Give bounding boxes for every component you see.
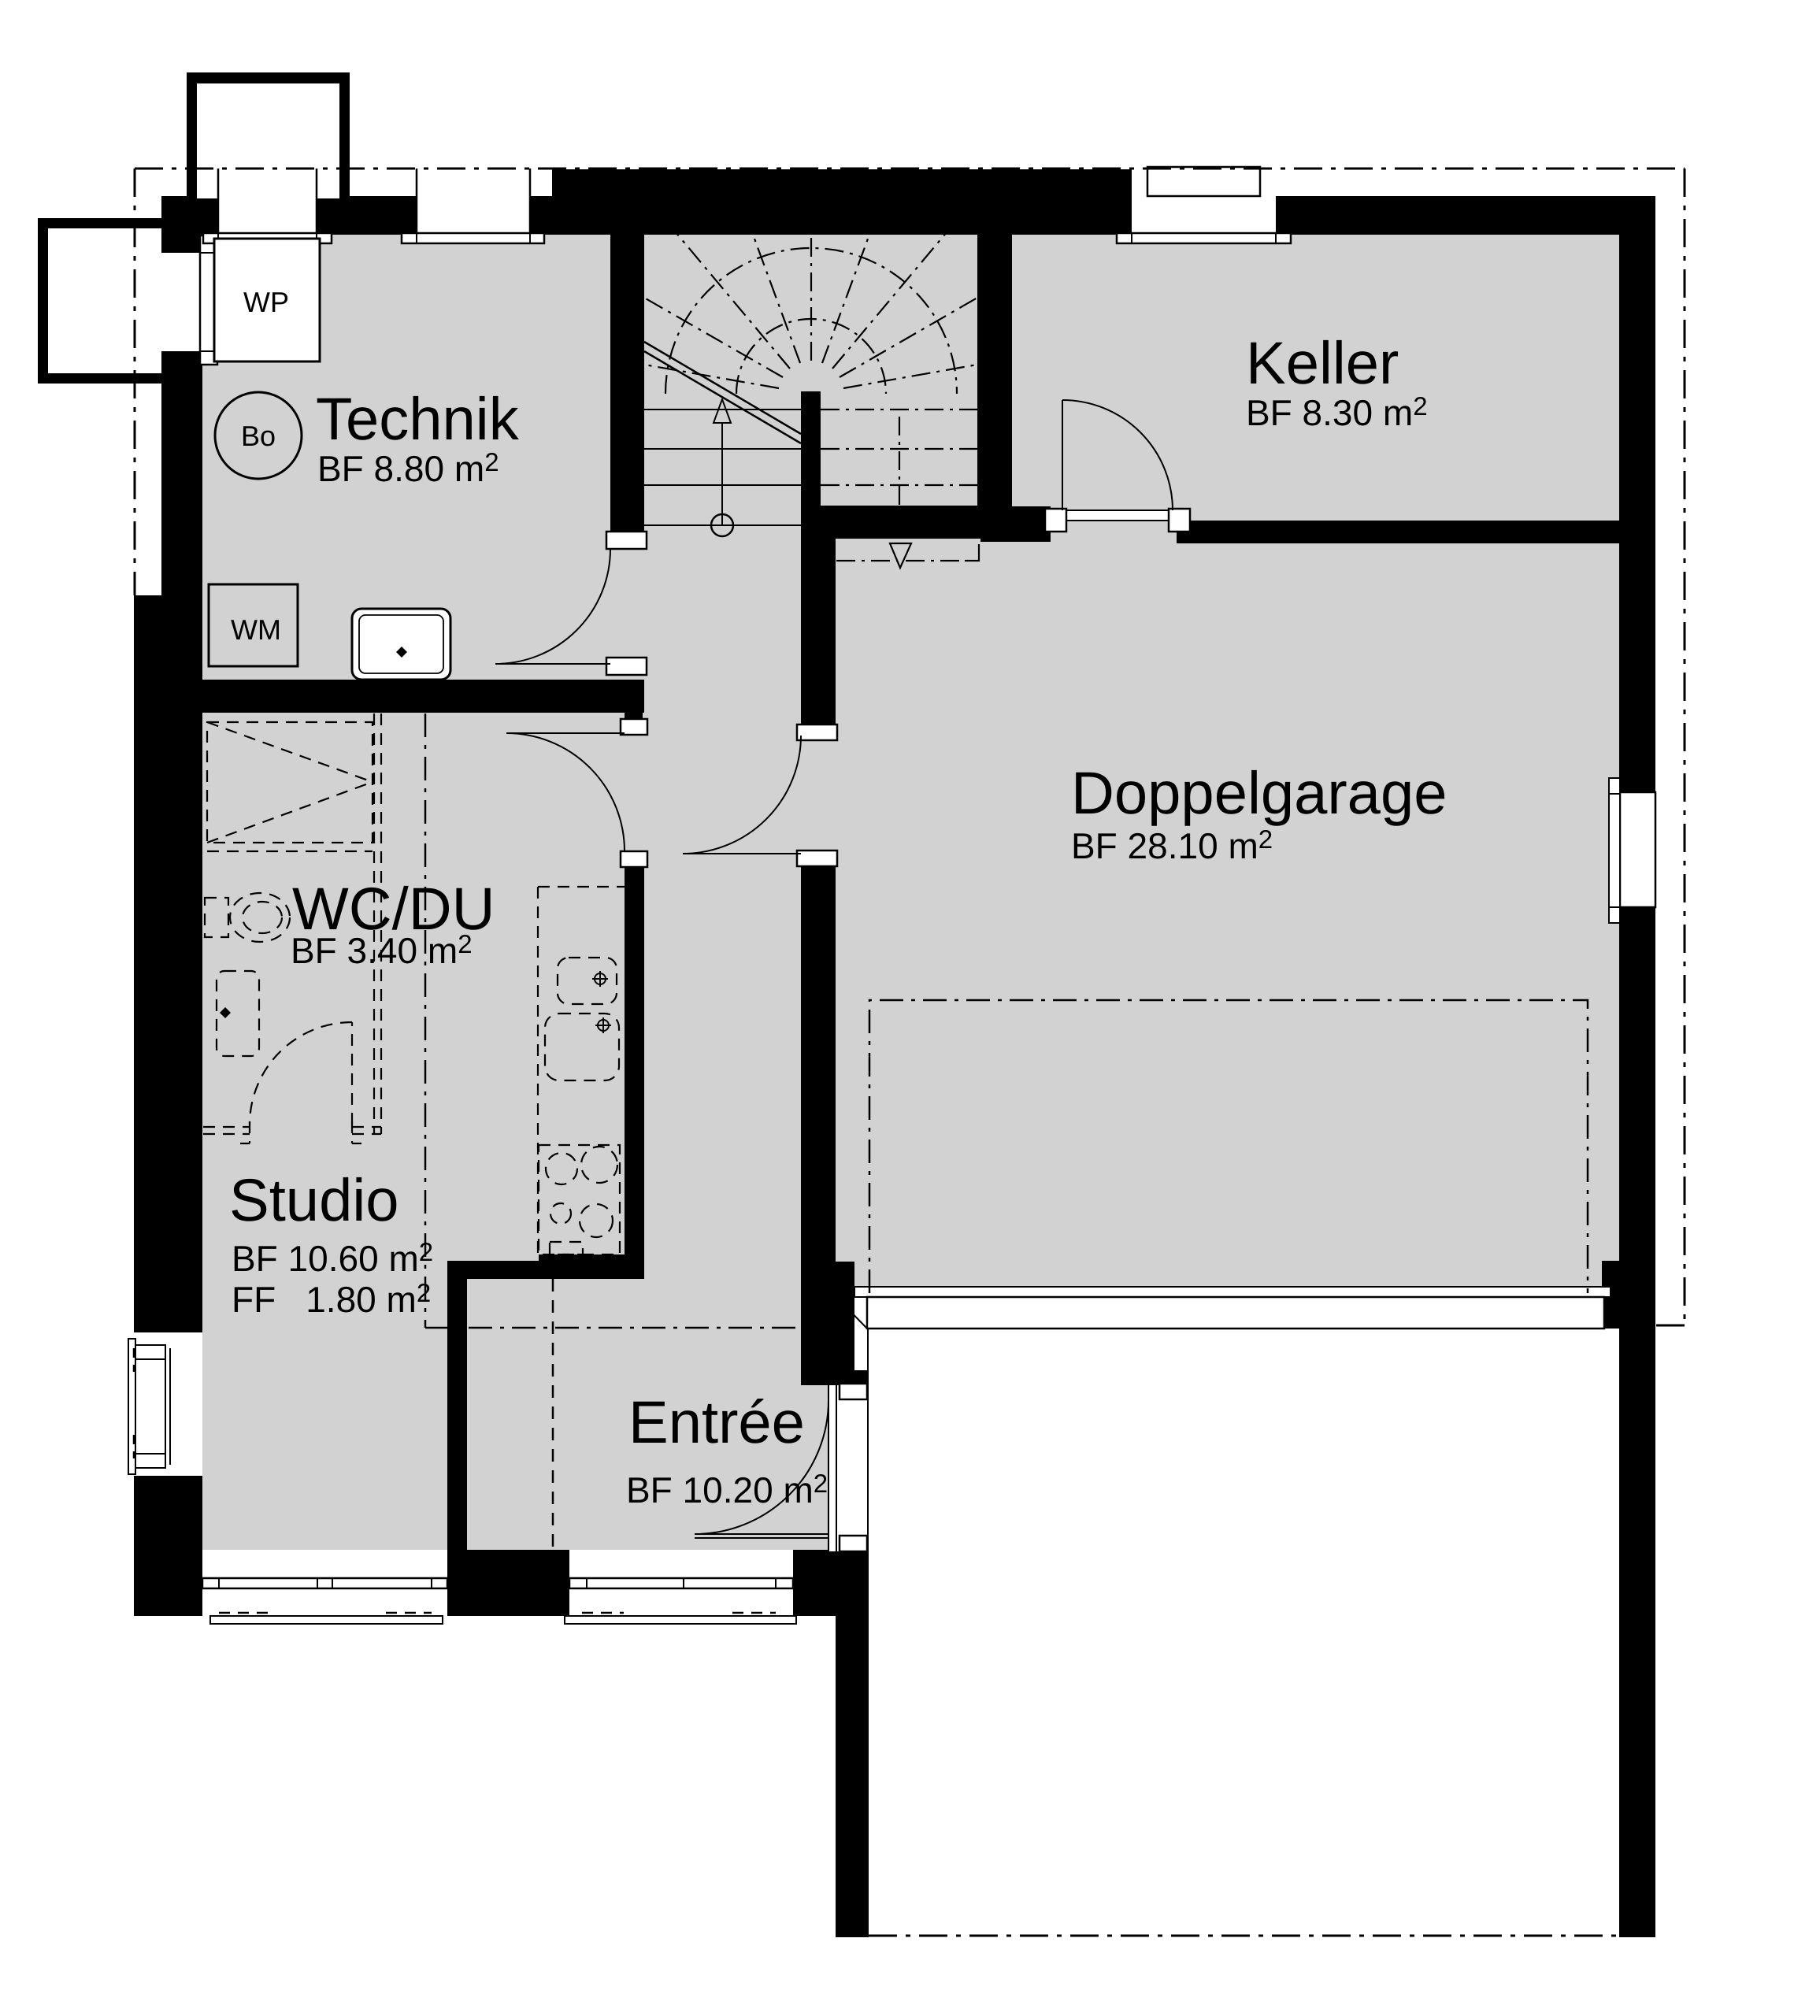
svg-text:Keller: Keller <box>1246 330 1399 397</box>
svg-text:BF 8.80 m2: BF 8.80 m2 <box>317 447 499 489</box>
svg-text:Studio: Studio <box>229 1167 399 1234</box>
svg-text:WM: WM <box>231 613 281 646</box>
svg-text:Technik: Technik <box>316 386 520 453</box>
svg-text:BF 10.20 m2: BF 10.20 m2 <box>626 1469 828 1510</box>
svg-text:BF 28.10 m2: BF 28.10 m2 <box>1071 825 1273 866</box>
svg-text:WP: WP <box>243 286 289 318</box>
svg-text:BF 10.60 m2: BF 10.60 m2 <box>232 1237 433 1279</box>
svg-text:BF 3.40 m2: BF 3.40 m2 <box>291 929 473 971</box>
svg-text:Bo: Bo <box>241 420 276 452</box>
svg-text:BF 8.30 m2: BF 8.30 m2 <box>1246 391 1428 433</box>
svg-text:Entrée: Entrée <box>628 1389 805 1456</box>
svg-text:Doppelgarage: Doppelgarage <box>1071 760 1447 827</box>
svg-text:FF1.80 m2: FF1.80 m2 <box>232 1278 431 1320</box>
